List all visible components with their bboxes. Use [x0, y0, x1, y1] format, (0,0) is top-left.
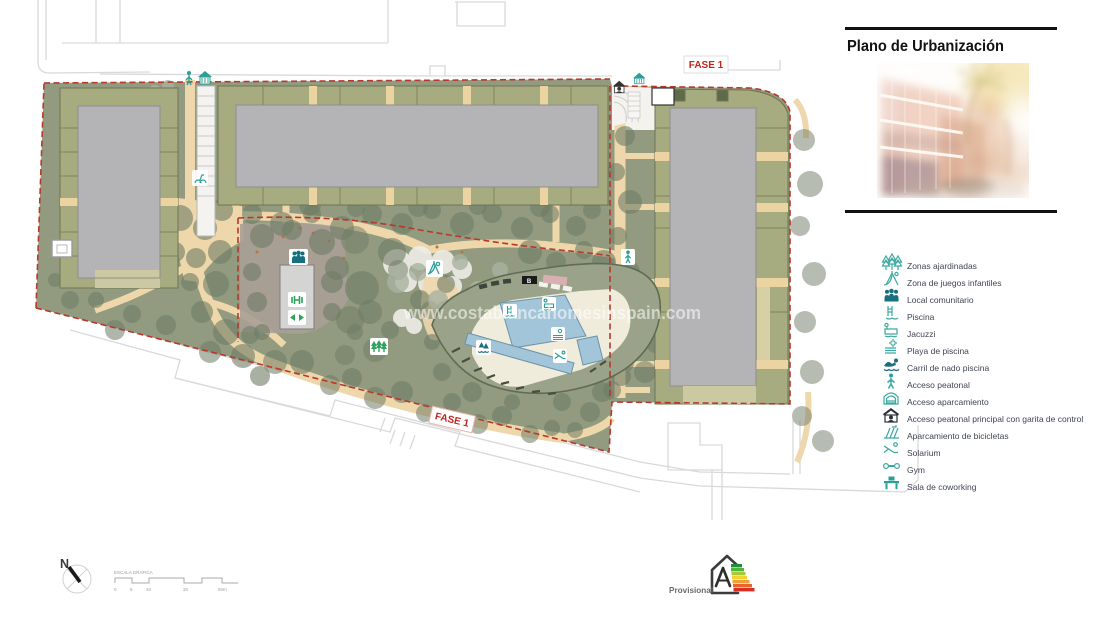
- svg-text:Piscina: Piscina: [907, 312, 935, 322]
- svg-text:N: N: [60, 557, 69, 571]
- svg-text:Aparcamiento de bicicletas: Aparcamiento de bicicletas: [907, 431, 1009, 441]
- svg-text:FASE 1: FASE 1: [689, 60, 724, 71]
- svg-text:Sala de coworking: Sala de coworking: [907, 482, 977, 492]
- svg-text:10: 10: [146, 587, 152, 592]
- svg-text:Solarium: Solarium: [907, 448, 941, 458]
- svg-text:ESCALA GRAFICA: ESCALA GRAFICA: [114, 570, 153, 575]
- svg-text:50m: 50m: [218, 587, 227, 592]
- svg-text:Acceso aparcamiento: Acceso aparcamiento: [907, 397, 989, 407]
- svg-text:Playa de piscina: Playa de piscina: [907, 346, 969, 356]
- svg-text:Zonas ajardinadas: Zonas ajardinadas: [907, 261, 977, 271]
- svg-text:Acceso peatonal: Acceso peatonal: [907, 380, 970, 390]
- svg-text:Local comunitario: Local comunitario: [907, 295, 974, 305]
- svg-text:B: B: [527, 279, 532, 285]
- svg-text:5: 5: [130, 587, 133, 592]
- svg-text:www.costablancahomesinspain.co: www.costablancahomesinspain.com: [403, 303, 701, 323]
- svg-text:Gym: Gym: [907, 465, 925, 475]
- svg-text:0: 0: [114, 587, 117, 592]
- svg-text:Provisional: Provisional: [669, 586, 713, 595]
- svg-text:Carril de nado piscina: Carril de nado piscina: [907, 363, 989, 373]
- svg-text:Jacuzzi: Jacuzzi: [907, 329, 935, 339]
- svg-text:Acceso peatonal principal con: Acceso peatonal principal con garita de …: [907, 414, 1083, 424]
- svg-text:Plano de Urbanización: Plano de Urbanización: [847, 38, 1004, 55]
- svg-text:20: 20: [183, 587, 189, 592]
- svg-text:Zona de juegos infantiles: Zona de juegos infantiles: [907, 278, 1002, 288]
